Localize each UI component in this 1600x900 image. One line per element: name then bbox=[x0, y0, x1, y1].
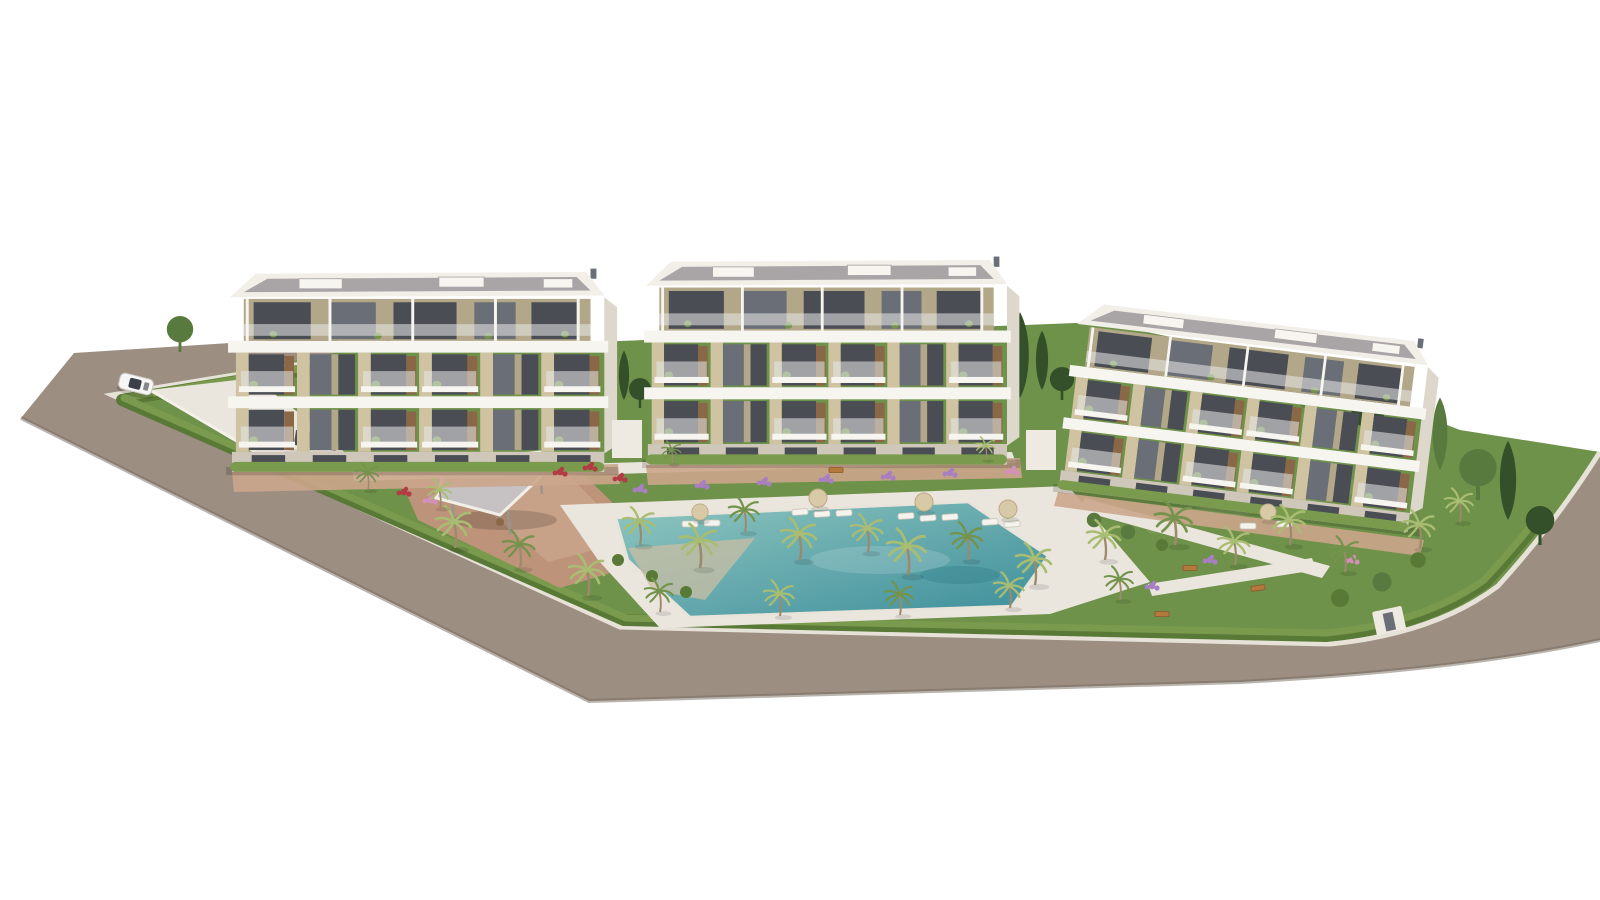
apartment-building-1 bbox=[226, 269, 618, 476]
garden-bench bbox=[1183, 566, 1197, 571]
boundary-wall bbox=[612, 420, 642, 458]
aerial-render bbox=[0, 0, 1600, 900]
garden-bench bbox=[829, 468, 843, 473]
pavilion-table bbox=[496, 518, 504, 526]
sun-lounger bbox=[982, 518, 998, 525]
sun-lounger bbox=[836, 509, 852, 516]
sun-lounger bbox=[898, 512, 914, 519]
water-shadow bbox=[920, 566, 1000, 584]
sun-lounger bbox=[792, 508, 808, 515]
sun-lounger bbox=[1240, 523, 1256, 529]
boundary-wall bbox=[1026, 430, 1056, 470]
apartment-building-2 bbox=[642, 257, 1020, 469]
garden-bench bbox=[1155, 612, 1169, 617]
sun-lounger bbox=[942, 513, 958, 520]
scene-canvas bbox=[0, 0, 1600, 900]
